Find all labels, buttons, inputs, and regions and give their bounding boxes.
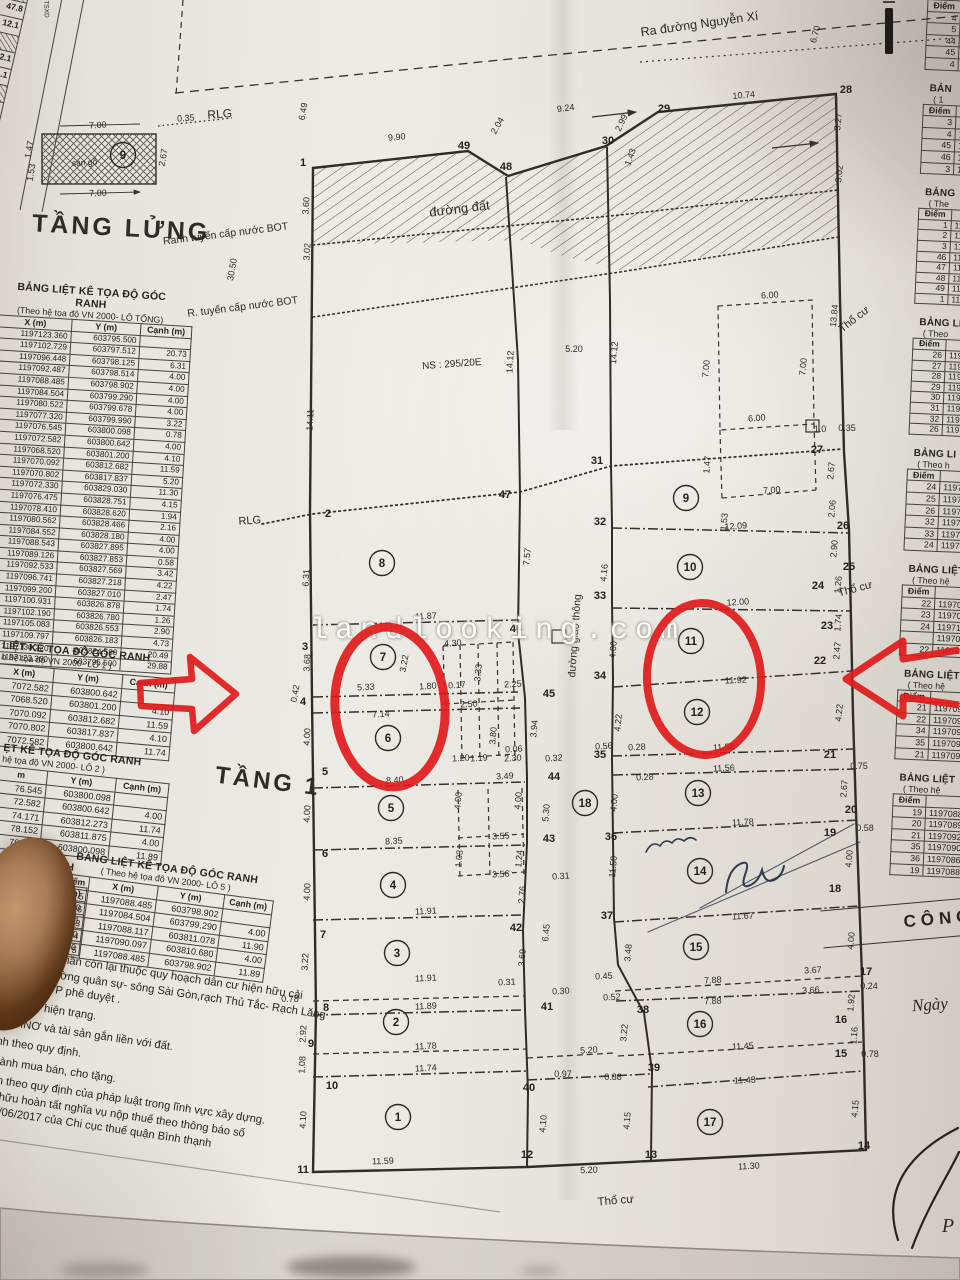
photographed-survey-document: 47.847.812.112.11.1.18 CH ĐTSXD TẦNG LỬN… [0,0,960,1280]
dimension-label: 9.24 [556,102,575,114]
right-table-2: BẢN( 1ĐiểmX (m31141145119461193119 [920,82,960,180]
point-label: 20 [845,804,857,816]
dimension-label: 1.03 [453,850,464,868]
ngay-label: Ngày [911,994,948,1016]
column-header: Điểm [927,0,960,13]
dimension-label: 11.30 [738,1160,760,1171]
bot-water-lines [313,190,838,317]
dimension-label: 7.14 [372,709,390,720]
dimension-label: 2.90 [828,540,839,558]
table-cell: 1197088. [923,865,960,881]
dimension-label: 2.67 [838,780,849,798]
table-row: 211197092 [895,747,960,765]
plot-number-text: 10 [684,562,697,574]
dimension-label: 14.12 [504,350,515,373]
table-row: 2611971 [909,423,960,440]
dimension-label: 2.50 [460,699,478,710]
map-text: đường đất [428,197,490,219]
dimension-label: 3.49 [496,771,514,782]
plot-circle [686,781,711,806]
map-text: RLG [238,514,261,528]
dimension-label: 4.00 [302,728,313,746]
dimension-label: 0.31 [552,871,570,882]
right-tables-column: BẢĐiểmX (m41151144114511411BẢN( 1ĐiểmX (… [889,0,960,895]
plot-circle [698,1110,723,1135]
dimension-label: 3.68 [302,654,313,672]
dimension-label: 0.75 [850,761,868,771]
dimension-label: 1.24 [513,850,524,868]
plot-number-3: 3 [385,941,410,966]
table-row: 221197096 [899,643,960,661]
plot-circle [674,486,699,511]
dimension-label: 2.06 [826,500,837,518]
dimension-label: 4.22 [833,704,844,722]
table-row: 411 [925,57,960,75]
right-table: ĐiểmX (m191197088.201197089.211197092351… [889,793,960,881]
point-label: 21 [824,749,836,761]
dimension-label: 8.35 [385,836,403,847]
plot-circle [688,859,713,884]
plot-number-text: 17 [704,1117,717,1129]
dimension-label: 4.15 [621,1112,632,1130]
dimension-label: 5.33 [357,682,375,693]
dimension-label: 0.45 [595,971,613,982]
shadow-smudge [60,1262,150,1278]
corner-table-fragment: 47.847.812.112.11.1.18 CH ĐTSXD [0,0,35,137]
dimension-label: 4.00 [843,850,854,868]
dimension-label: 0.42 [289,684,302,703]
plot-number-text: 7 [380,652,386,664]
dimension-label: 2.04 [489,115,506,135]
right-table: ĐiểmX (m31141145119461193119 [920,103,960,179]
point-label: 43 [543,833,555,845]
plot-number-8: 8 [370,551,395,576]
point-label: 44 [548,771,561,783]
dimension-label: 11.78 [732,816,754,827]
dimension-label: 2.47 [831,642,842,660]
dimension-label: 6.70 [808,24,822,44]
top-road-lines [175,0,958,148]
plot-number-13: 13 [686,781,711,806]
dimension-label: 7.00 [763,484,781,495]
dimension-label: 4.00 [302,883,313,901]
point-label: 25 [843,561,855,573]
dimension-label: 4.00 [302,805,313,823]
dimension-label: 0.28 [628,742,646,753]
dimension-label: 1.20 [452,753,470,764]
dimension-label: 1.26 [832,576,843,594]
right-table-6: BẢNG LIỆT( Theo hệĐiểmX (m22119709623119… [899,563,960,661]
plot-number-16: 16 [688,1012,713,1037]
dimension-label: 7.00 [700,360,711,378]
plot-number-text: 1 [395,1112,402,1124]
point-label: 2 [325,508,331,520]
dimension-label: 5.20 [580,1045,598,1056]
dimension-label: 0.24 [860,981,878,991]
right-table: ĐiểmX (m22119709623119709924119710011970… [899,584,960,660]
dimension-label: 11.89 [415,1000,437,1011]
lo-tong-table: X (m)Y (m)Cạnh (m)1197123.360603795.5001… [0,314,192,674]
point-label: 39 [648,1062,660,1074]
table-cell: 24 [904,538,937,551]
dimension-label: 1.19 [470,753,488,764]
point-label: 17 [860,966,872,978]
dimension-label: 4.16 [598,564,609,582]
san-go-label: sàn gỗ [72,157,98,168]
dimension-label: 11.91 [415,905,437,916]
dimension-label: 0.56 [595,741,613,752]
dimension-label: 3.22 [300,953,311,971]
plot-number-7: 7 [371,645,396,670]
plot-number-1: 1 [386,1105,411,1130]
column-header: Điểm [902,585,935,598]
handwriting-marks [646,824,860,932]
dimension-label: 2.67 [825,462,836,480]
point-label: 13 [645,1149,657,1161]
dimension-label: 0.31 [498,977,516,988]
dimension-label: 4.00 [512,792,523,810]
scale-bar-icon [883,2,895,54]
map-text: Thổ cư [837,304,872,335]
map-text: Thổ cư [837,579,874,600]
map-text: Thổ cư [597,1193,635,1208]
plot-number-text: 11 [685,636,698,648]
dimension-label: 6.45 [540,924,551,942]
table-cell: 1197092 [928,749,960,765]
dimension-label: 10.74 [732,89,755,101]
dimension-label: 2.99 [613,113,629,133]
plot-number-10: 10 [678,555,703,580]
plot-number-9: 9 [111,143,136,168]
point-label: 19 [824,827,836,839]
dimension-label: 3.55 [492,831,510,842]
dimension-label: 7.57 [521,548,532,566]
point-label: 35 [594,749,606,761]
dimension-label: 9.90 [388,131,406,142]
dimension-label: 1.43 [622,147,637,167]
plot-circle [370,551,395,576]
point-label: 47 [499,489,511,501]
right-table-4: BẢNG LI( TheoĐiểmX (m2611971271197128119… [909,317,960,441]
right-table-8: BẢNG LIỆT( Theo hệĐiểmX (m191197088.2011… [889,772,960,882]
right-table-3: BẢNG( TheĐiểmX (m11197211973119746119747… [914,187,960,311]
table-cell: 1 [915,293,948,305]
dimension-label: 3.66 [802,985,820,996]
point-label: 42 [510,922,522,934]
parcel-divisions-right-dashed [527,976,862,1058]
table-cell: 11971 [948,295,960,310]
plot-number-text: 6 [385,733,391,745]
dimension-label: 0.97 [554,1069,572,1079]
point-label: 16 [835,1014,847,1026]
plot-number-text: 5 [388,803,395,815]
dimension-label: 11.78 [415,1040,437,1051]
table-row: 111971 [915,293,960,310]
dimension-label: 7.88 [704,996,722,1007]
point-label: 31 [591,455,603,467]
plot-number-text: 18 [579,798,592,810]
dimension-label: 3.22 [398,654,411,673]
dimension-label: 0.30 [552,986,570,997]
plot-circle [111,143,136,168]
point-label: 12 [521,1149,533,1161]
dimension-label: 1.0 [814,424,827,434]
right-table-1: BẢĐiểmX (m41151144114511411 [924,0,960,76]
dimension-label: 3.80 [487,727,498,745]
plot-number-12: 12 [685,700,710,725]
dimension-label: 2.67 [157,148,170,167]
plot-circle [381,873,406,898]
table-cell: 11971 [942,425,960,440]
small-structure [806,420,819,432]
plot-circle [371,645,396,670]
dimension-label: 12.00 [726,596,749,607]
plot-circle [684,935,709,960]
right-table-5: BẢNG LI( Theo hĐiểmX (m24119710251197102… [903,447,960,557]
plot-circle [385,941,410,966]
dimension-label: 0.52 [603,992,621,1003]
point-label: 34 [594,670,607,682]
tang-lung-heading: TẦNG LỬNG [31,209,211,247]
point-label: 37 [601,910,613,922]
dimension-label: 1.47 [23,140,36,159]
point-label: 1 [300,157,306,169]
point-label: 27 [811,444,823,456]
point-label: 33 [594,590,606,602]
plot-number-text: 15 [690,942,703,954]
point-label: 22 [814,655,826,667]
dimension-label: 3.56 [492,869,510,880]
plot-number-text: 12 [691,707,704,719]
point-label: 45 [543,688,555,700]
dimension-label: 2.76 [516,886,527,904]
plot-number-17: 17 [698,1110,723,1135]
column-header: Điểm [907,469,940,482]
dimension-label: 1.92 [845,994,856,1012]
right-table: ĐiểmX (m11197211973119746119747119748119… [914,208,960,310]
dimension-label: 3.02 [301,243,312,261]
dimension-label: 5.20 [565,344,583,354]
plot-circle [685,700,710,725]
dimension-label: 11.59 [372,1156,394,1167]
map-text: Ra đường Nguyễn Xí [640,8,760,39]
point-label: 49 [458,140,470,152]
dimension-label: 30.50 [225,258,239,282]
dimension-label: 0.78 [861,1049,879,1059]
table-cell: 26 [909,423,942,435]
plot-number-text: 2 [393,1017,399,1029]
dimension-label: 4.15 [849,1100,860,1118]
dimension-label: 11.45 [732,1040,754,1051]
plot-number-text: 9 [120,150,126,162]
dimension-label: 6.49 [297,102,310,121]
dimension-label: 0.88 [604,1072,622,1082]
parcel-divisions-right [527,528,863,1087]
dimension-label: 2.30 [504,753,522,764]
dimension-label: 0.06 [505,744,523,755]
dimension-label: 7.00 [797,358,808,376]
mezzanine-plan: sàn gỗ [42,118,232,194]
shadow-smudge [520,1266,560,1276]
table-cell: 21 [895,747,928,760]
plot-number-text: 13 [692,788,705,800]
dimension-label: 4.10 [537,1115,548,1133]
dimension-label: 3.67 [804,965,822,976]
table-cell: 19 [890,863,923,876]
point-label: 28 [840,84,852,96]
point-label: 18 [829,883,841,895]
point-label: 38 [637,1004,649,1016]
table-cell: 3 [920,162,953,175]
dimension-label: 2.25 [504,679,522,690]
point-label: 40 [523,1082,535,1094]
dimension-label: 14.11 [304,409,315,431]
plot-number-text: 3 [394,948,400,960]
plot-number-text: 14 [694,866,707,878]
plot-circle [678,555,703,580]
right-table-7: BẢNG LIỆT( Theo hệĐiểmX (m21119709222119… [894,668,960,766]
point-label: 14 [858,1140,871,1152]
dimension-label: 5.30 [540,804,551,822]
column-header: Điểm [897,689,930,702]
dimension-label: 0.32 [545,753,563,764]
corner-fragment-lines [20,0,84,212]
map-text: RLG [207,106,233,122]
table-cell: 1197096 [932,644,960,660]
corner-side-label: ĐTSXD [42,0,50,18]
dimension-label: 11.67 [732,910,754,921]
dimension-label: 11.92 [725,674,747,685]
plot-number-14: 14 [688,859,713,884]
dimension-label: 1.74 [832,614,843,632]
dimension-label: 3.22 [618,1024,629,1042]
dimension-label: 0.28 [636,772,654,783]
shadow-smudge [286,1256,416,1278]
dimension-label: 3.48 [622,944,633,962]
dimension-label: 14.12 [608,341,620,364]
red-circle-plots-6-7 [330,623,451,790]
point-label: 5 [322,766,328,778]
corner-table-cells: 47.847.812.112.11.1.18 [0,0,35,137]
point-label: 15 [835,1048,847,1060]
plot-circle [386,1105,411,1130]
plot-number-2: 2 [384,1010,409,1035]
point-label: 10 [326,1080,338,1092]
map-text: NS : 295/20E [422,357,482,372]
plot-number-4: 4 [381,873,406,898]
point-label: 30 [602,135,614,147]
paper-crease [556,640,582,1200]
map-text: R. tuyến cấp nước BOT [187,294,300,320]
point-label: 24 [812,580,825,592]
column-header: Điểm [923,104,956,117]
right-tables-host: BẢĐiểmX (m41151144114511411BẢN( 1ĐiểmX (… [889,0,960,882]
dimension-label: 0.35 [177,112,195,123]
dimension-label: 3.60 [300,197,311,215]
dimension-label: 12.09 [724,520,747,532]
dimension-label: 4.00 [608,794,619,812]
table-cell: 22 [899,643,932,656]
right-table: ĐiểmX (m21119709222119709634119709535119… [894,689,960,765]
plot-circle [573,791,598,816]
cong-block: CÔNG [830,897,960,956]
point-label: 3 [302,641,308,653]
lo-tong-table-host: X (m)Y (m)Cạnh (m)1197123.360603795.5001… [0,314,192,674]
dimension-label: 4.00 [452,792,463,810]
dimension-label: 7.00 [89,188,107,199]
dimension-label: 5.20 [580,1165,598,1176]
point-label: 41 [541,1001,553,1013]
plot-number-text: 8 [379,558,386,570]
dimension-label: 4.22 [612,714,623,732]
dimension-label: 1.16 [848,1027,859,1045]
right-table: ĐiểmX (m24119710251197102611971032119710… [903,468,960,556]
right-table: ĐiểmX (m26119712711971281197129119713011… [909,338,960,440]
point-label: 7 [320,929,326,941]
plot-number-5: 5 [379,796,404,821]
dimension-label: 3.27 [832,112,844,130]
road-lines [506,147,652,1167]
dimension-label: 13.84 [828,304,840,327]
point-label: 29 [658,103,670,115]
dimension-label: 3.94 [528,720,539,738]
paper-crease [548,0,578,430]
dimension-label: 7.00 [89,120,107,131]
plot-number-9: 9 [674,486,699,511]
plot-number-6: 6 [376,726,401,751]
rlg-line [262,449,843,524]
tang-1-heading: TẦNG 1 [214,762,323,803]
point-label: 32 [594,516,606,528]
dimension-label: 1.80 [419,681,437,692]
dimension-label: 11.43 [734,1074,756,1085]
dimension-label: 1.47 [701,456,712,474]
table-row: 24119710 [904,538,960,556]
dimension-label: 0.35 [838,423,856,433]
plot-number-text: 9 [683,493,689,505]
parcel-divisions-left-dashed [313,996,527,1054]
dimension-label: 6.00 [761,289,779,300]
plot-number-text: 4 [390,880,397,892]
dimension-label: 6.31 [301,569,312,587]
dimension-label: 3.33 [472,664,483,682]
parcel-divisions-left [313,620,527,1077]
column-header: Điểm [893,794,926,807]
table-cell: 119710 [937,540,960,556]
dimension-label: 0.58 [856,823,874,833]
plot-number-18: 18 [573,791,598,816]
dimension-label: 1.53 [25,163,38,182]
plot-circle [384,1010,409,1035]
table-row: 191197088. [890,863,960,881]
table-row: 3119 [920,162,960,180]
dimension-label: 0.17 [448,680,466,691]
dimension-label: 11.91 [415,972,437,983]
point-label: 23 [821,620,833,632]
table-cell: 119 [953,163,960,179]
dimension-label: 11.74 [415,1062,437,1073]
right-table: ĐiểmX (m41151144114511411 [924,0,960,75]
dimension-label: 11.50 [607,855,619,878]
dimension-label: 6.00 [748,412,766,423]
point-label: 4 [300,696,307,708]
point-label: 26 [837,520,849,532]
hatched-strip [313,94,838,270]
dimension-label: 1.53 [718,513,729,531]
dimension-label: 3.02 [833,164,845,182]
signature-stroke [893,1128,959,1248]
plot-number-text: 16 [694,1019,707,1031]
